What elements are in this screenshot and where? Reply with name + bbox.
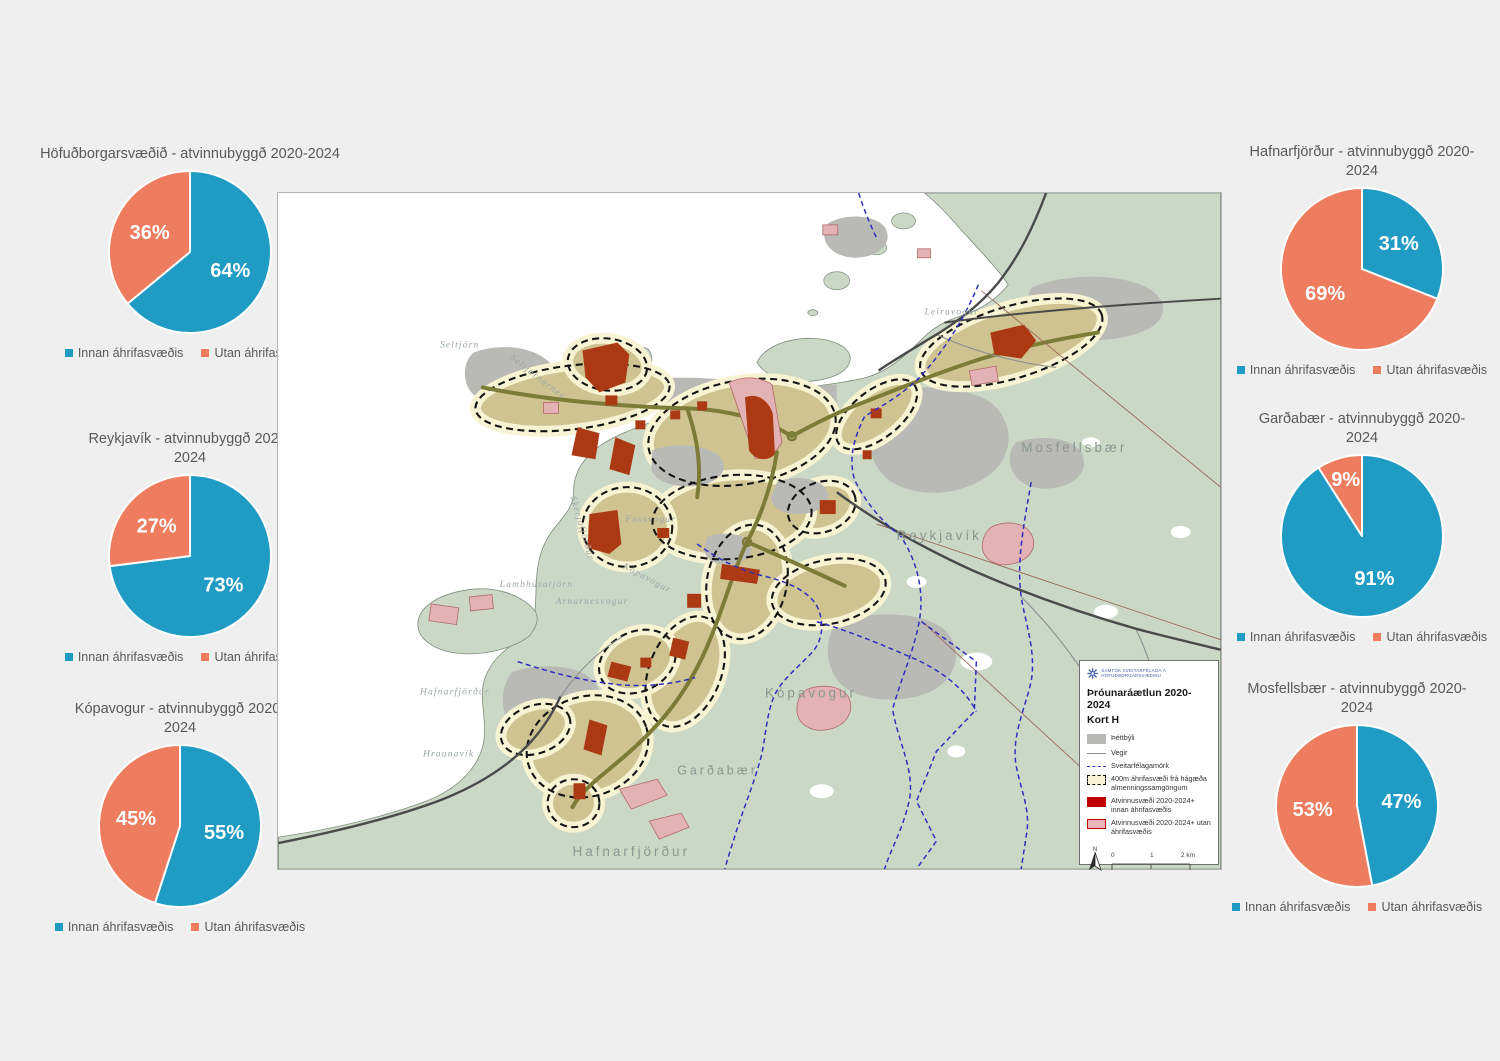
scale-1: 1	[1150, 852, 1154, 859]
water-label: Lambhúsatjörn	[499, 580, 573, 590]
pie-value-label: 73%	[203, 574, 243, 596]
map-title: Þróunaráætlun 2020-2024	[1087, 687, 1211, 711]
innan-swatch-icon	[65, 349, 73, 357]
pie-title: Höfuðborgarsvæðið - atvinnubyggð 2020-20…	[40, 145, 340, 164]
pie-value-label: 31%	[1379, 233, 1419, 255]
map-legend-panel: SAMTÖK SVEITARFÉLAGA Á HÖFUÐBORGARSVÆÐIN…	[1079, 660, 1219, 865]
legend-item-atvinnusvaedi-innan: Atvinnusvæði 2020-2024+ innan áhrifasvæð…	[1087, 796, 1211, 814]
water-label: Hraunavík	[422, 749, 474, 759]
infographic-canvas: Höfuðborgarsvæðið - atvinnubyggð 2020-20…	[0, 0, 1500, 1061]
pie-value-label: 9%	[1331, 469, 1360, 491]
pie-chart-mosfellsbaer: Mosfellsbær - atvinnubyggð 2020-2024 47%…	[1227, 680, 1487, 914]
legend-label-utan: Utan áhrifasvæðis	[204, 920, 305, 934]
legend-item-thettbyli: Þéttbýli	[1087, 733, 1211, 744]
pie-value-label: 45%	[116, 808, 156, 830]
association-name: SAMTÖK SVEITARFÉLAGA Á HÖFUÐBORGARSVÆÐIN…	[1101, 669, 1211, 678]
town-label: Garðabær	[677, 763, 758, 777]
legend-label-utan: Utan áhrifasvæðis	[1386, 363, 1487, 377]
compass-scale-row: N 0 1 2 km	[1087, 845, 1211, 872]
road-line-icon	[1087, 753, 1106, 754]
legend-item-vegir: Vegir	[1087, 748, 1211, 757]
legend-item-sveitarfelagamork: Sveitarfélagamörk	[1087, 761, 1211, 770]
water-label: Arnarnesvogur	[555, 597, 629, 607]
pie-value-label: 55%	[204, 822, 244, 844]
pie-hafnarfjordur: 31%69%	[1278, 185, 1446, 353]
employment-outside-swatch-icon	[1087, 819, 1106, 829]
pie-value-label: 36%	[130, 222, 170, 244]
legend-item-ahrifasvaedi: 400m áhrifasvæði frá hágæða almenningssa…	[1087, 774, 1211, 792]
urban-swatch-icon	[1087, 734, 1106, 744]
innan-swatch-icon	[65, 653, 73, 661]
pie-reykjavik: 73%27%	[106, 472, 274, 640]
utan-swatch-icon	[201, 653, 209, 661]
pie-title: Kópavogur - atvinnubyggð 2020-2024	[63, 700, 298, 738]
pie-legend: Innan áhrifasvæðis Utan áhrifasvæðis	[30, 920, 330, 934]
pie-title: Reykjavík - atvinnubyggð 2020-2024	[73, 430, 308, 468]
map-subtitle: Kort H	[1087, 714, 1211, 726]
legend-label-utan: Utan áhrifasvæðis	[1381, 900, 1482, 914]
pie-value-label: 53%	[1293, 799, 1333, 821]
innan-swatch-icon	[1237, 633, 1245, 641]
utan-swatch-icon	[191, 923, 199, 931]
legend-label-innan: Innan áhrifasvæðis	[1250, 363, 1356, 377]
water-label: Hafnarfjörður	[419, 687, 490, 698]
pie-value-label: 27%	[137, 515, 177, 537]
org-row: SAMTÖK SVEITARFÉLAGA Á HÖFUÐBORGARSVÆÐIN…	[1087, 667, 1211, 680]
capital-region-map: Seltjörn Seltjarnarnes Leiruvogur Mosfel…	[277, 192, 1222, 870]
legend-item-atvinnusvaedi-utan: Atvinnusvæði 2020-2024+ utan áhrifasvæði…	[1087, 818, 1211, 836]
innan-swatch-icon	[1232, 903, 1240, 911]
legend-label-innan: Innan áhrifasvæðis	[68, 920, 174, 934]
pie-kopavogur: 55%45%	[96, 742, 264, 910]
north-arrow-icon: N	[1087, 845, 1103, 872]
legend-label-innan: Innan áhrifasvæðis	[78, 346, 184, 360]
town-label: Mosfellsbær	[1021, 440, 1127, 455]
innan-swatch-icon	[1237, 366, 1245, 374]
employment-inside-swatch-icon	[1087, 797, 1106, 807]
pie-value-label: 69%	[1305, 283, 1345, 305]
pie-title: Hafnarfjörður - atvinnubyggð 2020-2024	[1245, 143, 1480, 181]
pie-legend: Innan áhrifasvæðis Utan áhrifasvæðis	[1227, 900, 1487, 914]
pie-title: Garðabær - atvinnubyggð 2020-2024	[1245, 410, 1480, 448]
scale-2km: 2 km	[1181, 852, 1195, 859]
water-label: Fossvogur	[624, 515, 676, 525]
pie-chart-hafnarfjordur: Hafnarfjörður - atvinnubyggð 2020-2024 3…	[1232, 143, 1492, 377]
legend-label-utan: Utan áhrifasvæðis	[1386, 630, 1487, 644]
town-label: Reykjavík	[897, 528, 982, 543]
pie-hofudborgarsvaedid: 64%36%	[106, 168, 274, 336]
influence-zone-swatch-icon	[1087, 775, 1106, 785]
pie-value-label: 47%	[1381, 790, 1421, 812]
water-label: Leiruvogur	[923, 308, 979, 318]
scale-0: 0	[1111, 852, 1115, 859]
legend-label-innan: Innan áhrifasvæðis	[1250, 630, 1356, 644]
innan-swatch-icon	[55, 923, 63, 931]
utan-swatch-icon	[1373, 633, 1381, 641]
utan-swatch-icon	[201, 349, 209, 357]
pie-chart-gardabaer: Garðabær - atvinnubyggð 2020-2024 91%9% …	[1232, 410, 1492, 644]
legend-label-innan: Innan áhrifasvæðis	[1245, 900, 1351, 914]
boundary-dash-icon	[1087, 766, 1106, 767]
pie-value-label: 64%	[210, 260, 250, 282]
pie-title: Mosfellsbær - atvinnubyggð 2020-2024	[1240, 680, 1475, 718]
pie-value-label: 91%	[1354, 567, 1394, 589]
utan-swatch-icon	[1368, 903, 1376, 911]
pie-gardabaer: 91%9%	[1278, 452, 1446, 620]
scale-bar: 0 1 2 km	[1111, 852, 1195, 872]
town-label: Kópavogur	[765, 686, 857, 701]
association-logo-icon	[1087, 667, 1098, 680]
water-label: Seltjörn	[440, 341, 480, 351]
pie-legend: Innan áhrifasvæðis Utan áhrifasvæðis	[1232, 630, 1492, 644]
scale-bar-line	[1111, 862, 1195, 872]
pie-mosfellsbaer: 47%53%	[1273, 722, 1441, 890]
utan-swatch-icon	[1373, 366, 1381, 374]
legend-label-innan: Innan áhrifasvæðis	[78, 650, 184, 664]
town-label: Hafnarfjörður	[573, 844, 690, 859]
pie-legend: Innan áhrifasvæðis Utan áhrifasvæðis	[1232, 363, 1492, 377]
